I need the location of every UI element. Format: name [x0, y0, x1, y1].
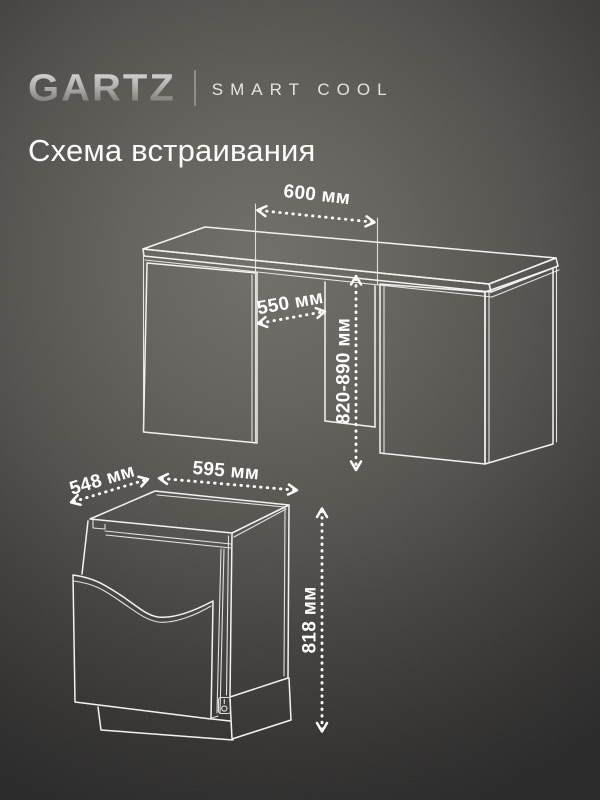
dim-niche-height-label: 820-890 мм — [334, 318, 355, 424]
infographic-page: GARTZ SMART COOL Схема встраивания — [0, 0, 600, 800]
dim-appliance-height-label: 818 мм — [300, 587, 321, 654]
installation-diagram: 600 мм 550 мм 820-890 мм — [0, 0, 600, 800]
grain-overlay — [0, 0, 600, 800]
